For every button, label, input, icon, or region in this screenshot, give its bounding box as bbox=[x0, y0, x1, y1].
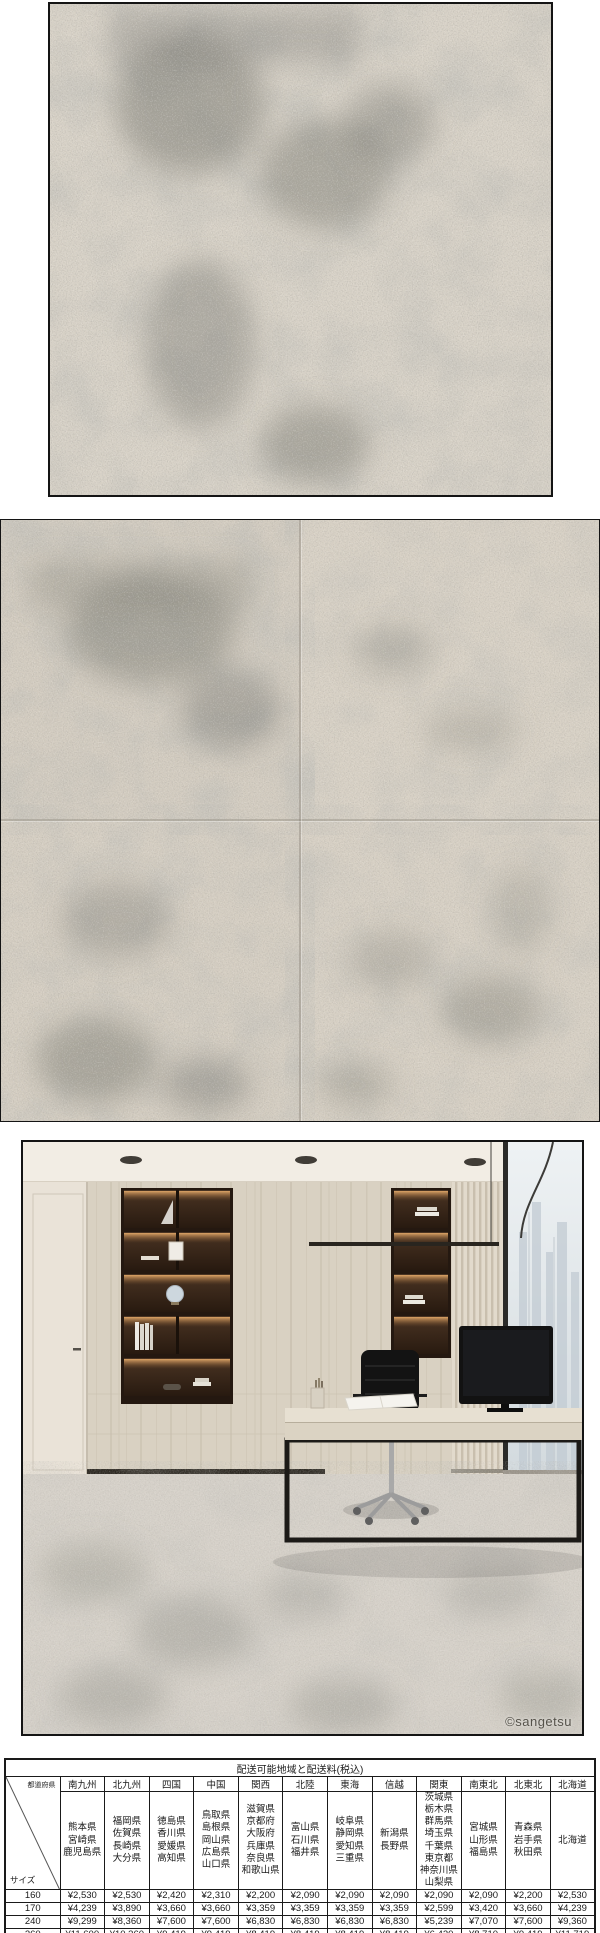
sangetsu-watermark: ©sangetsu bbox=[505, 1714, 572, 1729]
fee-row: 240¥9,299¥8,360¥7,600¥7,600¥6,830¥6,830¥… bbox=[5, 1916, 595, 1929]
prefecture-list: 熊本県 宮崎県 鹿児島県 bbox=[60, 1792, 105, 1890]
fee-cell: ¥6,830 bbox=[238, 1916, 283, 1929]
prefecture-list: 富山県 石川県 福井県 bbox=[283, 1792, 328, 1890]
fee-row: 160¥2,530¥2,530¥2,420¥2,310¥2,200¥2,090¥… bbox=[5, 1890, 595, 1903]
prefecture-list: 鳥取県 島根県 岡山県 広島県 山口県 bbox=[194, 1792, 239, 1890]
bookshelf-niche-left bbox=[121, 1188, 233, 1404]
carpet-floor bbox=[23, 1474, 582, 1734]
fee-cell: ¥6,830 bbox=[283, 1916, 328, 1929]
region-header: 四国 bbox=[149, 1777, 194, 1792]
fee-cell: ¥2,090 bbox=[327, 1890, 372, 1903]
fee-cell: ¥8,710 bbox=[461, 1929, 506, 1933]
tile-seam-horizontal bbox=[1, 819, 599, 821]
region-header: 南九州 bbox=[60, 1777, 105, 1792]
fee-cell: ¥6,830 bbox=[372, 1916, 417, 1929]
fee-cell: ¥2,310 bbox=[194, 1890, 239, 1903]
fee-cell: ¥2,090 bbox=[461, 1890, 506, 1903]
fee-cell: ¥8,360 bbox=[105, 1916, 150, 1929]
fee-cell: ¥2,200 bbox=[506, 1890, 551, 1903]
prefecture-list: 福岡県 佐賀県 長崎県 大分県 bbox=[105, 1792, 150, 1890]
size-label: 170 bbox=[5, 1903, 60, 1916]
fee-cell: ¥9,419 bbox=[194, 1929, 239, 1933]
fee-cell: ¥2,530 bbox=[105, 1890, 150, 1903]
fee-cell: ¥4,239 bbox=[550, 1903, 595, 1916]
carpet-closeup-image bbox=[48, 2, 553, 497]
fee-cell: ¥8,419 bbox=[372, 1929, 417, 1933]
fee-cell: ¥2,530 bbox=[60, 1890, 105, 1903]
bookshelf-niche-right bbox=[391, 1188, 451, 1358]
corner-label-size: サイズ bbox=[10, 1874, 35, 1886]
size-label: 160 bbox=[5, 1890, 60, 1903]
shipping-table-body: 配送可能地域と配送料(税込) 都道府県 サイズ 南九州北九州四国中国関西北陸東海… bbox=[5, 1759, 595, 1933]
pendant-light bbox=[309, 1242, 499, 1246]
office-room-image: ©sangetsu bbox=[21, 1140, 584, 1736]
fee-cell: ¥2,200 bbox=[238, 1890, 283, 1903]
fee-cell: ¥5,239 bbox=[417, 1916, 462, 1929]
fee-row: 170¥4,239¥3,890¥3,660¥3,660¥3,359¥3,359¥… bbox=[5, 1903, 595, 1916]
fee-cell: ¥9,299 bbox=[60, 1916, 105, 1929]
fee-cell: ¥2,090 bbox=[372, 1890, 417, 1903]
fee-cell: ¥7,600 bbox=[506, 1916, 551, 1929]
fee-cell: ¥6,830 bbox=[327, 1916, 372, 1929]
fee-cell: ¥8,419 bbox=[238, 1929, 283, 1933]
fee-cell: ¥3,660 bbox=[194, 1903, 239, 1916]
door bbox=[33, 1194, 83, 1470]
region-header: 関西 bbox=[238, 1777, 283, 1792]
fee-cell: ¥2,090 bbox=[417, 1890, 462, 1903]
fee-cell: ¥9,419 bbox=[149, 1929, 194, 1933]
fee-cell: ¥7,600 bbox=[194, 1916, 239, 1929]
region-header: 北九州 bbox=[105, 1777, 150, 1792]
prefecture-list: 茨城県 栃木県 群馬県 埼玉県 千葉県 東京都 神奈川県 山梨県 bbox=[417, 1792, 462, 1890]
prefecture-list: 北海道 bbox=[550, 1792, 595, 1890]
prefecture-list: 徳島県 香川県 愛媛県 高知県 bbox=[149, 1792, 194, 1890]
region-header: 関東 bbox=[417, 1777, 462, 1792]
region-header: 北東北 bbox=[506, 1777, 551, 1792]
door-handle bbox=[73, 1348, 81, 1351]
region-header: 北陸 bbox=[283, 1777, 328, 1792]
fee-cell: ¥3,660 bbox=[149, 1903, 194, 1916]
fee-cell: ¥3,359 bbox=[283, 1903, 328, 1916]
corner-cell: 都道府県 サイズ bbox=[5, 1777, 60, 1890]
region-header: 東海 bbox=[327, 1777, 372, 1792]
desk-top bbox=[285, 1408, 582, 1422]
prefecture-list: 宮城県 山形県 福島県 bbox=[461, 1792, 506, 1890]
office-room-art bbox=[23, 1142, 582, 1734]
fee-cell: ¥2,090 bbox=[283, 1890, 328, 1903]
size-label: 260 bbox=[5, 1929, 60, 1933]
region-header: 中国 bbox=[194, 1777, 239, 1792]
prefecture-list: 青森県 岩手県 秋田県 bbox=[506, 1792, 551, 1890]
prefecture-row: 熊本県 宮崎県 鹿児島県福岡県 佐賀県 長崎県 大分県徳島県 香川県 愛媛県 高… bbox=[5, 1792, 595, 1890]
fee-cell: ¥7,600 bbox=[149, 1916, 194, 1929]
fee-row: 260¥11,600¥10,360¥9,419¥9,419¥8,419¥8,41… bbox=[5, 1929, 595, 1933]
fee-cell: ¥8,419 bbox=[283, 1929, 328, 1933]
carpet-tile-grid-art bbox=[1, 520, 599, 1121]
product-page: ©sangetsu 配送可能地域と配送料(税込) 都道府県 サイズ 南九州北九州… bbox=[0, 0, 600, 1933]
shipping-table-title: 配送可能地域と配送料(税込) bbox=[5, 1759, 595, 1777]
fee-cell: ¥10,360 bbox=[105, 1929, 150, 1933]
fee-cell: ¥2,599 bbox=[417, 1903, 462, 1916]
fee-cell: ¥8,419 bbox=[327, 1929, 372, 1933]
corner-label-prefecture: 都道府県 bbox=[28, 1780, 56, 1790]
fee-cell: ¥3,890 bbox=[105, 1903, 150, 1916]
fee-cell: ¥6,420 bbox=[417, 1929, 462, 1933]
size-label: 240 bbox=[5, 1916, 60, 1929]
photo-frame bbox=[169, 1242, 183, 1260]
globe-decor bbox=[167, 1286, 184, 1303]
region-header: 信越 bbox=[372, 1777, 417, 1792]
fee-cell: ¥9,360 bbox=[550, 1916, 595, 1929]
white-books bbox=[135, 1322, 153, 1350]
fee-cell: ¥11,600 bbox=[60, 1929, 105, 1933]
region-header: 南東北 bbox=[461, 1777, 506, 1792]
fee-cell: ¥2,420 bbox=[149, 1890, 194, 1903]
region-header-row: 都道府県 サイズ 南九州北九州四国中国関西北陸東海信越関東南東北北東北北海道 bbox=[5, 1777, 595, 1792]
region-header: 北海道 bbox=[550, 1777, 595, 1792]
fee-cell: ¥3,359 bbox=[327, 1903, 372, 1916]
prefecture-list: 岐阜県 静岡県 愛知県 三重県 bbox=[327, 1792, 372, 1890]
diagonal-divider bbox=[6, 1777, 60, 1889]
fee-cell: ¥9,419 bbox=[506, 1929, 551, 1933]
fee-cell: ¥4,239 bbox=[60, 1903, 105, 1916]
fee-cell: ¥7,070 bbox=[461, 1916, 506, 1929]
fee-cell: ¥11,719 bbox=[550, 1929, 595, 1933]
desk-shadow bbox=[273, 1546, 582, 1578]
prefecture-list: 滋賀県 京都府 大阪府 兵庫県 奈良県 和歌山県 bbox=[238, 1792, 283, 1890]
fee-cell: ¥3,359 bbox=[372, 1903, 417, 1916]
fee-cell: ¥3,359 bbox=[238, 1903, 283, 1916]
desk-apron bbox=[285, 1423, 582, 1440]
carpet-closeup-art bbox=[50, 4, 551, 495]
carpet-tile-grid-image bbox=[0, 519, 600, 1122]
fee-cell: ¥3,660 bbox=[506, 1903, 551, 1916]
prefecture-list: 新潟県 長野県 bbox=[372, 1792, 417, 1890]
monitor bbox=[459, 1326, 553, 1412]
fee-cell: ¥2,530 bbox=[550, 1890, 595, 1903]
shipping-table: 配送可能地域と配送料(税込) 都道府県 サイズ 南九州北九州四国中国関西北陸東海… bbox=[4, 1758, 596, 1933]
fee-cell: ¥3,420 bbox=[461, 1903, 506, 1916]
